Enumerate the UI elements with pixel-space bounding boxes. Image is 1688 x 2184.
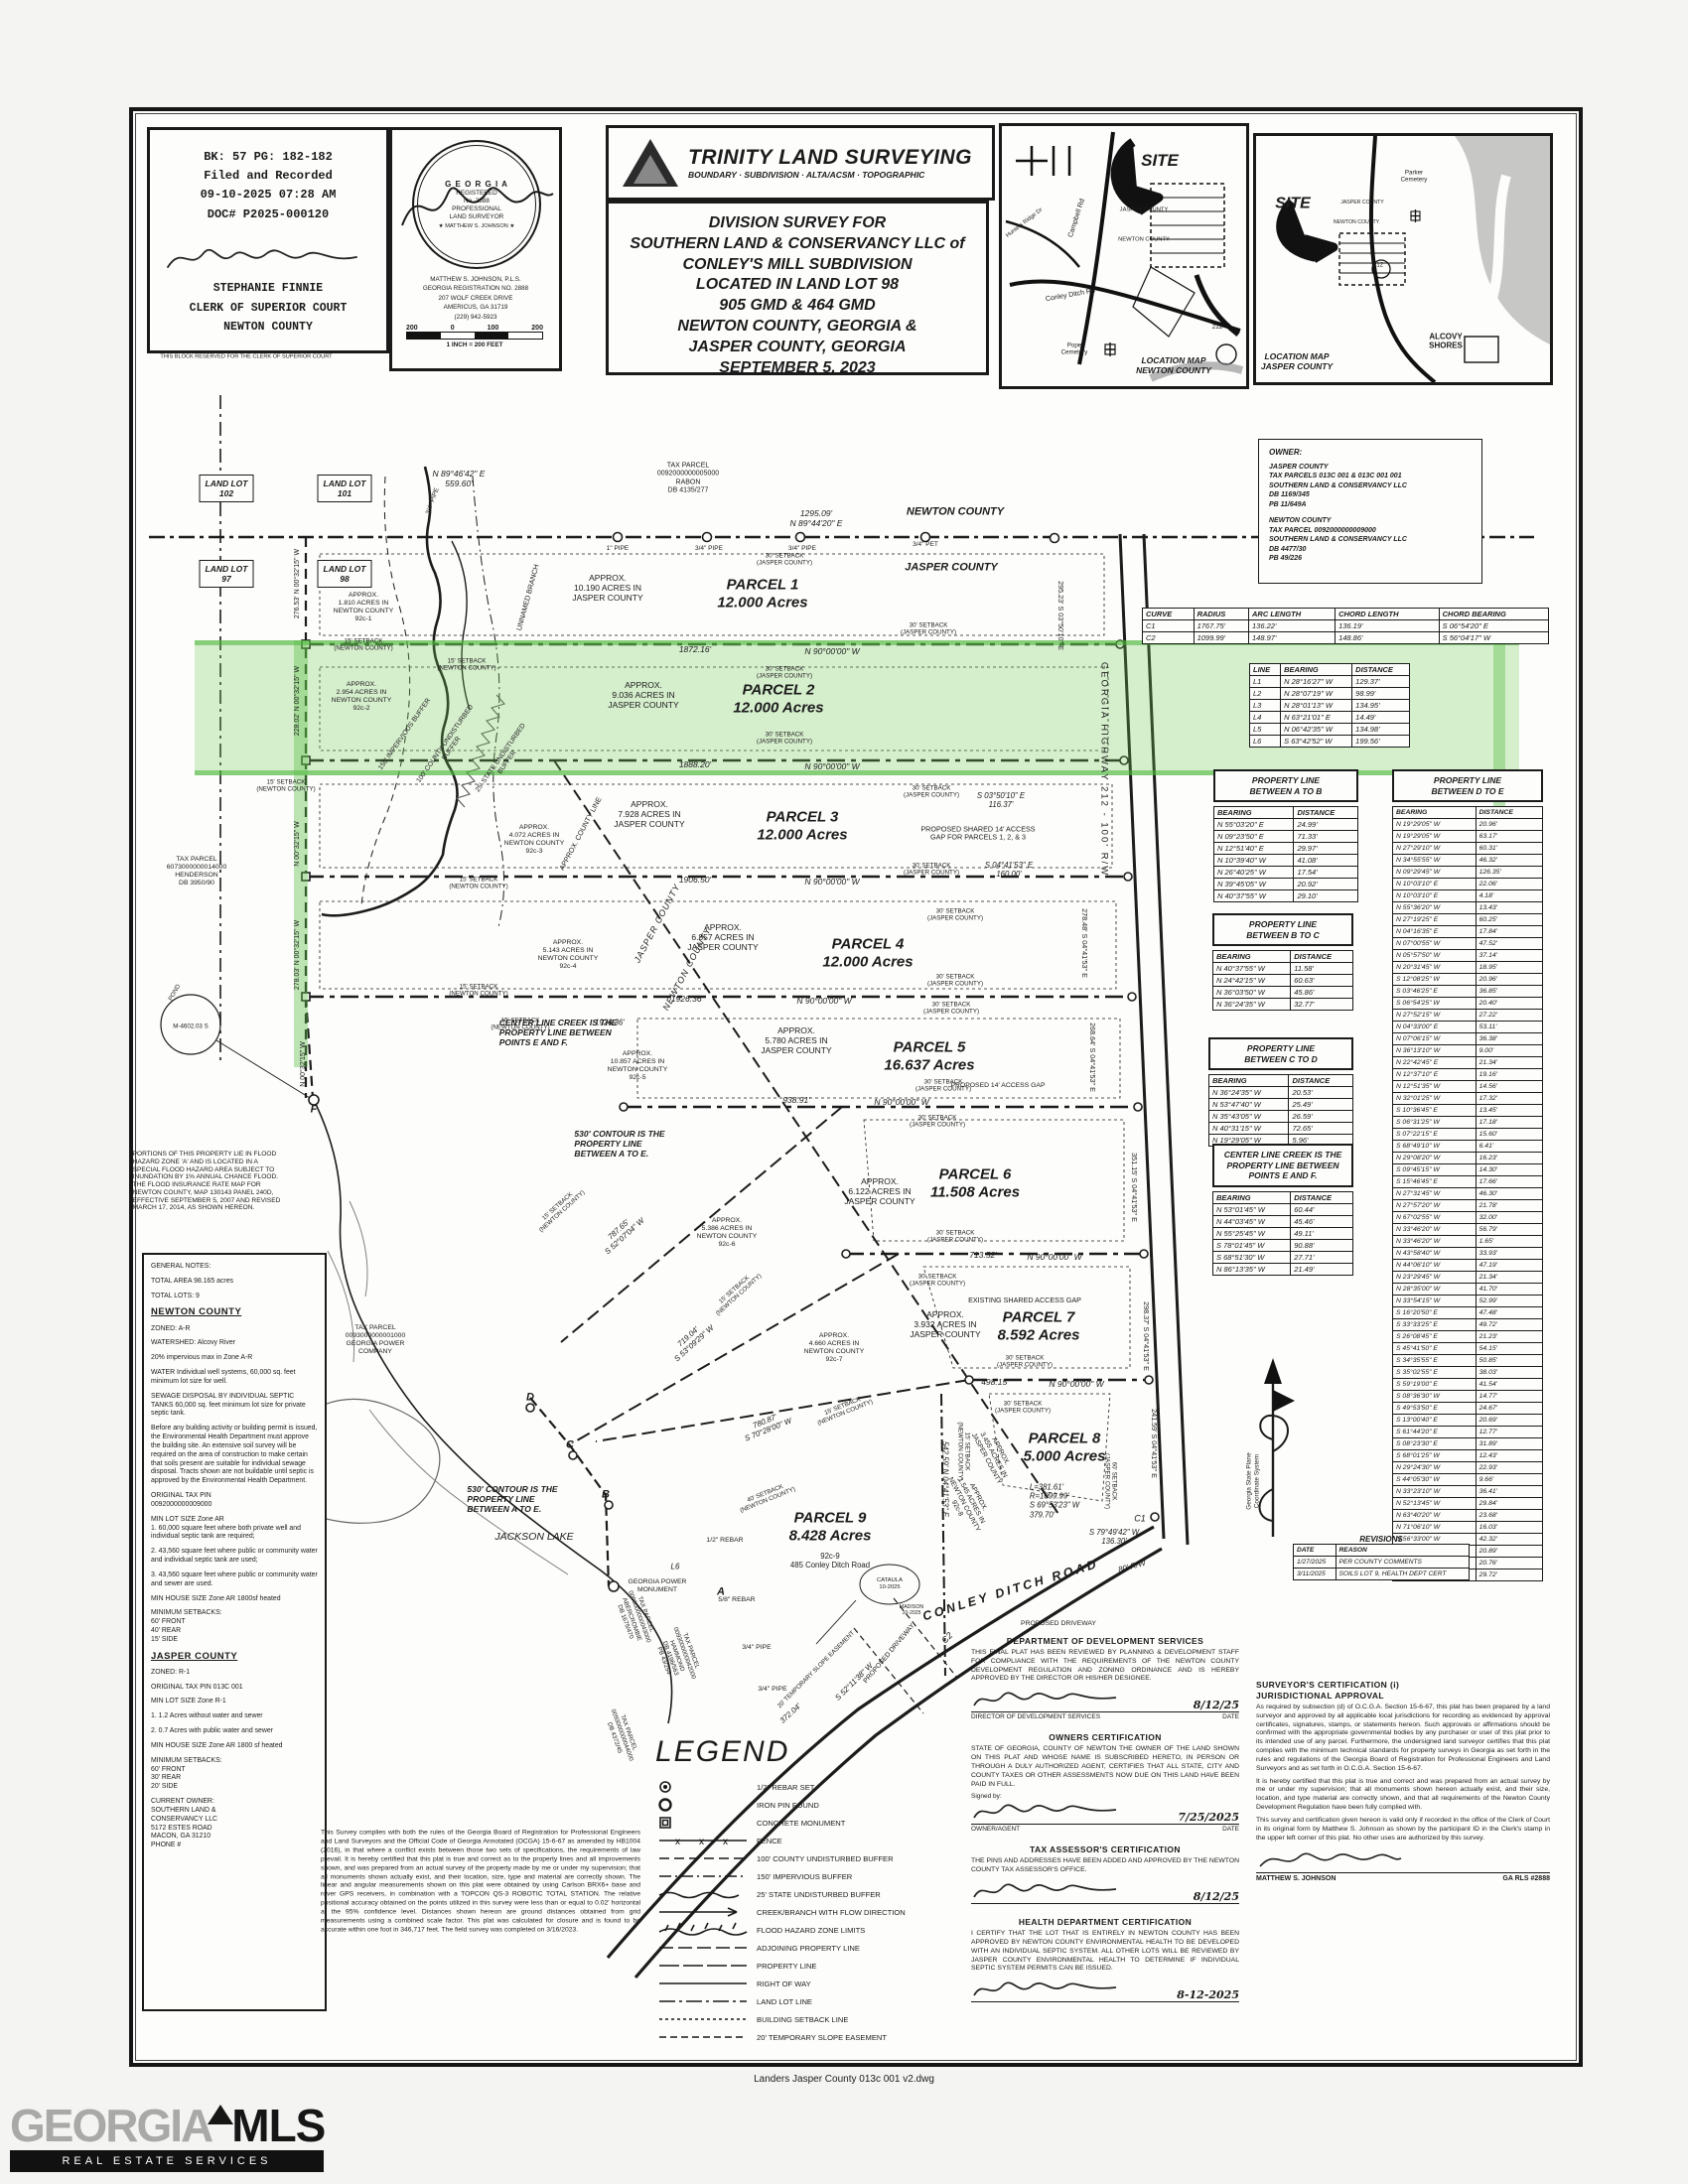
table-cell: N 27°29'10" W [1393, 843, 1477, 855]
table-cell: N 63°21'01" E [1281, 712, 1352, 724]
table-cell: 126.35' [1476, 867, 1542, 879]
table-cell: 52.99' [1476, 1296, 1542, 1307]
certification-heading: OWNERS CERTIFICATION [971, 1732, 1239, 1742]
table-header-cell: BEARING [1213, 1191, 1291, 1203]
plat-label: D [526, 1392, 534, 1405]
table-cell: L4 [1250, 712, 1281, 724]
table-row: S 34°35'55" E50.85' [1393, 1355, 1543, 1367]
table-row: S 68°51'30" W27.71' [1213, 1251, 1353, 1263]
plat-label: 3/4" PET [913, 541, 938, 549]
plat-label: TAX PARCEL 6073000000014000 HENDERSON DB… [167, 856, 226, 887]
table-cell: N 26°40'25" W [1214, 867, 1294, 879]
table-cell: N 39°45'05" W [1214, 879, 1294, 890]
plat-label: TAX PARCEL 0093000000044000 DB 4372/45 [602, 1706, 640, 1764]
table-row: N 10°03'10" E4.18' [1393, 890, 1543, 902]
table-cell: N 07°06'15" W [1393, 1033, 1477, 1045]
table-cell: N 12°37'10" E [1393, 1069, 1477, 1081]
table-cell: 14.56' [1476, 1081, 1542, 1093]
plat-label: S 79°49'42" W 136.30' [1089, 1528, 1139, 1546]
table-cell: 49.11' [1291, 1227, 1353, 1239]
plat-label: PARCEL 3 12.000 Acres [757, 808, 847, 843]
plat-label: Parker Cemetery [1401, 170, 1428, 185]
property-table-title: PROPERTY LINE BETWEEN B TO C [1212, 913, 1353, 946]
table-row: S 13°00'40" E20.69' [1393, 1415, 1543, 1427]
legend-item: 100' COUNTY UNDISTURBED BUFFER [657, 1850, 894, 1866]
table-cell: 29.97' [1294, 843, 1358, 855]
plat-label: 60' SETBACK (JASPER COUNTY) [1103, 1453, 1118, 1509]
georgia-mls-logo: GEORGIA MLS REAL ESTATE SERVICES [10, 2103, 325, 2148]
table-row: S 49°53'50" E24.67' [1393, 1403, 1543, 1415]
plat-label: 276.53' N 00°32'15" W [294, 549, 302, 618]
plat-label: 30' SETBACK (JASPER COUNTY) [757, 553, 812, 568]
line-table: LINEBEARINGDISTANCEL1N 28°16'27" W129.37… [1249, 663, 1410, 748]
legend-item: CREEK/BRANCH WITH FLOW DIRECTION [657, 1904, 906, 1920]
plat-label: C2 [939, 1630, 955, 1646]
table-cell: N 06°42'35" W [1281, 724, 1352, 736]
plat-label: L=381.61' R=1099.99' S 69°53'23" W 379.7… [1030, 1483, 1079, 1520]
table-cell: 20.96' [1476, 974, 1542, 986]
table-row: S 26°08'45" E21.23' [1393, 1331, 1543, 1343]
plat-label: EXISTING SHARED ACCESS GAP [968, 1297, 1081, 1304]
plat-label: PARCEL 2 12.000 Acres [733, 681, 823, 716]
table-cell: 33.93' [1476, 1248, 1542, 1260]
table-cell: 53.11' [1476, 1022, 1542, 1033]
plat-label: ALCOVY SHORES [1429, 333, 1463, 351]
table-row: S 06°31'25" W17.18' [1393, 1117, 1543, 1129]
table-row: S 78°01'45" W90.88' [1213, 1239, 1353, 1251]
table-row: N 55°36'20" W13.43' [1393, 902, 1543, 914]
owner-heading: OWNER: [1269, 448, 1472, 457]
plat-label: 1888.20' [679, 759, 711, 769]
plat-label: 1295.09' N 89°44'20" E [790, 508, 843, 528]
plat-label: 351.15' S 04°41'53" E [1130, 1153, 1138, 1222]
plat-label: N 89°46'42" E 559.60' [433, 469, 486, 488]
plat-label: APPROX. 4.072 ACRES IN NEWTON COUNTY 92c… [504, 824, 565, 856]
table-cell: 27.71' [1291, 1251, 1353, 1263]
plat-label: C1 [1134, 1514, 1146, 1525]
data-table: BEARINGDISTANCEN 55°03'20" E24.99'N 09°2… [1213, 806, 1358, 902]
table-header-cell: BEARING [1393, 807, 1477, 819]
general-note: CURRENT OWNER: SOUTHERN LAND & CONSERVAN… [151, 1798, 318, 1850]
plat-label: Campbell Rd [1067, 198, 1087, 238]
plat-label: 15' SETBACK (NEWTON COUNTY) [710, 1268, 764, 1318]
table-header-row: BEARINGDISTANCE [1213, 1191, 1353, 1203]
table-row: N 36°24'35" W20.53' [1209, 1087, 1353, 1099]
table-cell: 22.93' [1476, 1462, 1542, 1474]
table-cell: 45.46' [1291, 1215, 1353, 1227]
table-row: N 24°42'15" W60.63' [1213, 975, 1353, 987]
table-cell: S 26°08'45" E [1393, 1331, 1477, 1343]
table-row: N 53°01'45" W60.44' [1213, 1203, 1353, 1215]
table-cell: 60.31' [1476, 843, 1542, 855]
legend-item: LAND LOT LINE [657, 1993, 812, 2009]
table-cell: 41.08' [1294, 855, 1358, 867]
table-header-cell: DISTANCE [1289, 1075, 1353, 1087]
table-row: S 15°46'45" E17.66' [1393, 1176, 1543, 1188]
plat-label: LAND LOT 97 [200, 560, 254, 588]
table-cell: N 29°08'20" W [1393, 1153, 1477, 1164]
legend-item: IRON PIN FOUND [657, 1797, 819, 1813]
plat-label: 241.59' S 04°41'53" E [1150, 1409, 1158, 1478]
plat-label: 30' SETBACK (JASPER COUNTY) [757, 666, 812, 681]
plat-label: APPROX. 10.190 ACRES IN JASPER COUNTY [572, 573, 642, 603]
plat-label: M-4602.03 S [173, 1023, 208, 1029]
table-cell: N 53°01'45" W [1213, 1203, 1291, 1215]
certification-section: TAX ASSESSOR'S CERTIFICATIONTHE PINS AND… [971, 1844, 1239, 1905]
table-cell: N 24°42'15" W [1213, 975, 1291, 987]
table-cell: N 28°01'13" W [1281, 700, 1352, 712]
table-cell: 72.65' [1289, 1123, 1353, 1135]
plat-label: 780.87' S 70°28'00" W [740, 1408, 793, 1443]
legend-item-label: 25' STATE UNDISTURBED BUFFER [757, 1890, 881, 1899]
table-cell: 9.00' [1476, 1045, 1542, 1057]
plat-label: 30' SETBACK (JASPER COUNTY) [927, 908, 983, 923]
surveyor-cert-para1: As required by subsection (d) of O.C.G.A… [1256, 1704, 1550, 1774]
plat-label: 3/4" PIPE [788, 545, 816, 553]
plat-label: 938.91' [782, 1095, 810, 1105]
plat-label: LAND LOT 102 [200, 475, 254, 502]
plat-label: 268.64' S 04°41'53" E [1088, 1023, 1096, 1092]
plat-label: APPROX. 1.810 ACRES IN NEWTON COUNTY 92c… [334, 592, 394, 623]
table-cell: 71.33' [1294, 831, 1358, 843]
table-row: L1N 28°16'27" W129.37' [1250, 676, 1410, 688]
plat-label: LOCATION MAP JASPER COUNTY [1261, 351, 1333, 371]
table-row: N 27°57'20" W21.78' [1393, 1200, 1543, 1212]
plat-label: TAX PARCEL 0092000000005000 RABON DB 413… [657, 463, 719, 495]
table-cell: S 06°31'25" W [1393, 1117, 1477, 1129]
plat-label: 15' SETBACK (NEWTON COUNTY) [449, 877, 507, 891]
table-cell: N 27°31'45" W [1393, 1188, 1477, 1200]
table-row: N 19°29'05" W63.17' [1393, 831, 1543, 843]
general-note: 3. 43,560 square feet where public or co… [151, 1571, 318, 1589]
owner-newton: NEWTON COUNTY TAX PARCEL 009200000000900… [1269, 516, 1472, 563]
table-cell: 17.18' [1476, 1117, 1542, 1129]
certification-section: DEPARTMENT OF DEVELOPMENT SERVICESTHIS F… [971, 1636, 1239, 1720]
scanned-plat-page: BK: 57 PG: 182-182 Filed and Recorded 09… [0, 0, 1688, 2184]
table-header-row: BEARINGDISTANCE [1214, 807, 1358, 819]
data-table: BEARINGDISTANCEN 19°29'05" W20.96'N 19°2… [1392, 806, 1543, 1581]
table-cell: 29.72' [1476, 1570, 1542, 1581]
plat-label: 530' CONTOUR IS THE PROPERTY LINE BETWEE… [467, 1484, 557, 1514]
owner-jasper: JASPER COUNTY TAX PARCELS 013C 001 & 013… [1269, 463, 1472, 509]
table-header-row: DATEREASON [1294, 1545, 1470, 1557]
data-table: LINEBEARINGDISTANCEL1N 28°16'27" W129.37… [1249, 663, 1410, 748]
table-cell: N 71°06'10" W [1393, 1522, 1477, 1534]
table-row: N 32°01'25" W17.32' [1393, 1093, 1543, 1105]
plat-label: 30' SETBACK (JASPER COUNTY) [910, 1274, 965, 1289]
table-cell: 26.59' [1289, 1111, 1353, 1123]
table-cell: L2 [1250, 688, 1281, 700]
table-row: N 63°40'20" W23.68' [1393, 1510, 1543, 1522]
plat-label: 1/2" REBAR [706, 1537, 743, 1545]
table-cell: N 12°51'40" E [1214, 843, 1294, 855]
plat-label: 212 [1373, 262, 1383, 269]
table-row: S 61°44'20" E12.77' [1393, 1427, 1543, 1438]
table-cell: N 10°03'10" E [1393, 890, 1477, 902]
legend-item-label: 150' IMPERVIOUS BUFFER [757, 1872, 852, 1881]
table-cell: 21.23' [1476, 1331, 1542, 1343]
plat-label: Hunters Ridge Dr [1005, 207, 1045, 240]
plat-label: 498.15' [981, 1377, 1009, 1387]
table-cell: N 40°31'15" W [1209, 1123, 1289, 1135]
plat-label: APPROX. 6.122 ACRES IN JASPER COUNTY [844, 1176, 914, 1206]
surveyor-certification: SURVEYOR'S CERTIFICATION (i) JURISDICTIO… [1256, 1680, 1550, 1882]
data-table: BEARINGDISTANCEN 40°37'55" W11.58'N 24°4… [1212, 950, 1353, 1011]
plat-label: 3/4" PIPE [758, 1686, 786, 1694]
svg-text:x: x [675, 1837, 680, 1847]
plat-label: B [602, 1489, 610, 1502]
dash-med-icon [657, 1940, 749, 1956]
table-cell: N 28°07'19" W [1281, 688, 1352, 700]
legend: LEGEND [655, 1735, 963, 1769]
table-row: N 10°39'40" W41.08' [1214, 855, 1358, 867]
plat-label: PROPOSED DRIVEWAY [1021, 1620, 1096, 1628]
surveyor-cert-heading2: JURISDICTIONAL APPROVAL [1256, 1691, 1550, 1701]
certification-date: 8-12-2025 [1177, 1988, 1239, 2001]
table-cell: S 68°49'10" W [1393, 1141, 1477, 1153]
table-row: S 68°49'10" W6.41' [1393, 1141, 1543, 1153]
legend-item: RIGHT OF WAY [657, 1976, 811, 1991]
plat-label: 713.52' [969, 1250, 997, 1260]
table-cell: S 06°54'25" W [1393, 998, 1477, 1010]
table-cell: 17.84' [1476, 926, 1542, 938]
table-cell: 21.78' [1476, 1200, 1542, 1212]
plat-label: N 90°00'00" W [804, 877, 859, 887]
table-cell: 41.70' [1476, 1284, 1542, 1296]
legend-item-label: CONCRETE MONUMENT [757, 1819, 845, 1828]
plat-label: 3/4" PIPE [425, 487, 442, 516]
legend-item: FLOOD HAZARD ZONE LIMITS [657, 1922, 865, 1938]
general-note: MINIMUM SETBACKS: 60' FRONT 30' REAR 20'… [151, 1757, 318, 1792]
table-cell: 9.66' [1476, 1474, 1542, 1486]
table-cell: N 34°55'55" W [1393, 855, 1477, 867]
table-cell: 15.60' [1476, 1129, 1542, 1141]
plat-label: 542.59' N 04°41'53" E [940, 1441, 949, 1517]
general-note: ZONED: A-R [151, 1325, 318, 1334]
plat-label: CATAULA 10-2025 [877, 1577, 903, 1591]
plat-label: UNNAMED BRANCH [515, 564, 541, 632]
table-row: N 53°47'40" W25.49' [1209, 1099, 1353, 1111]
plat-label: 719.04' S 53°09'29" W [666, 1316, 716, 1363]
table-cell: 17.54' [1294, 867, 1358, 879]
table-cell: L1 [1250, 676, 1281, 688]
table-cell: S 34°35'55" E [1393, 1355, 1477, 1367]
table-cell: 36.85' [1476, 986, 1542, 998]
table-cell: 47.19' [1476, 1260, 1542, 1272]
legend-item: 150' IMPERVIOUS BUFFER [657, 1868, 852, 1884]
plat-label: PROPOSED DRIVEWAY [863, 1622, 917, 1685]
table-cell: 14.30' [1476, 1164, 1542, 1176]
property-table-title: PROPERTY LINE BETWEEN C TO D [1208, 1037, 1353, 1070]
table-cell: N 33°46'20" W [1393, 1224, 1477, 1236]
table-row: N 33°23'10" W36.41' [1393, 1486, 1543, 1498]
general-note: NEWTON COUNTY [151, 1306, 318, 1318]
table-cell: N 55°03'20" E [1214, 819, 1294, 831]
table-cell: 42.32' [1476, 1534, 1542, 1546]
table-cell: 32.77' [1291, 999, 1353, 1011]
table-cell: L6 [1250, 736, 1281, 748]
table-row: N 26°40'25" W17.54' [1214, 867, 1358, 879]
plat-label: 15' SETBACK (NEWTON COUNTY) [449, 984, 507, 999]
table-cell: N 86°13'35" W [1213, 1263, 1291, 1275]
plat-label: S 04°41'53" E 160.00' [985, 861, 1033, 879]
plat-label: 298.37' S 04°41'53" E [1142, 1301, 1150, 1371]
table-row: N 27°29'10" W60.31' [1393, 843, 1543, 855]
table-cell: SOILS LOT 9, HEALTH DEPT CERT [1336, 1569, 1469, 1580]
plat-label: MADISON 10-2025 [900, 1604, 923, 1616]
table-cell: 47.52' [1476, 938, 1542, 950]
table-cell: C2 [1143, 632, 1195, 644]
plat-label: PARCEL 1 12.000 Acres [717, 576, 807, 611]
plat-label: 787.65' S 52°07'04" W [597, 1209, 646, 1256]
table-cell: N 19°29'05" W [1393, 819, 1477, 831]
table-header-cell: LINE [1250, 664, 1281, 676]
plat-label: PARCEL 6 11.508 Acres [930, 1165, 1020, 1200]
general-note: TOTAL AREA 98.165 acres [151, 1278, 318, 1287]
plat-label: 1906.50' [679, 875, 711, 885]
table-cell: 24.67' [1476, 1403, 1542, 1415]
table-row: S 35°02'55" E38.03' [1393, 1367, 1543, 1379]
certification-sig-line: OWNER/AGENTDATE [971, 1824, 1239, 1833]
plat-label: APPROX. 3.932 ACRES IN JASPER COUNTY [910, 1309, 980, 1339]
table-row: S 07°22'15" E15.60' [1393, 1129, 1543, 1141]
property-table-de: PROPERTY LINE BETWEEN D TO EBEARINGDISTA… [1392, 769, 1543, 1581]
revisions-title: REVISIONS [1293, 1535, 1470, 1544]
table-header-cell: DISTANCE [1294, 807, 1358, 819]
plat-label: 30' SETBACK (JASPER COUNTY) [904, 785, 959, 800]
signature-icon [971, 1688, 1120, 1711]
table-cell: 148.97' [1249, 632, 1336, 644]
legend-item-label: CREEK/BRANCH WITH FLOW DIRECTION [757, 1908, 906, 1917]
table-row: N 09°29'45" W126.35' [1393, 867, 1543, 879]
plat-label: APPROX. 4.660 ACRES IN NEWTON COUNTY 92c… [804, 1332, 865, 1364]
table-cell: N 29°24'30" W [1393, 1462, 1477, 1474]
solid-icon [657, 1976, 749, 1991]
table-row: L6S 63°42'52" W199.56' [1250, 736, 1410, 748]
table-header-cell: DISTANCE [1352, 664, 1410, 676]
data-table: CURVERADIUSARC LENGTHCHORD LENGTHCHORD B… [1142, 608, 1549, 644]
plat-label: TAX PARCEL 0093000000001000 GEORGIA POWE… [346, 1324, 405, 1356]
table-cell: N 43°58'40" W [1393, 1248, 1477, 1260]
legend-item: CONCRETE MONUMENT [657, 1815, 845, 1831]
certification-sig-line: DIRECTOR OF DEVELOPMENT SERVICESDATE [971, 1711, 1239, 1720]
plat-label: 30' SETBACK (JASPER COUNTY) [923, 1002, 979, 1017]
table-cell: N 55°25'45" W [1213, 1227, 1291, 1239]
plat-label: JASPER COUNTY [1340, 200, 1384, 205]
general-note: 1. 1.2 Acres without water and sewer [151, 1712, 318, 1721]
table-cell: 134.98' [1352, 724, 1410, 736]
table-row: N 29°24'30" W22.93' [1393, 1462, 1543, 1474]
dash-long-icon [657, 1850, 749, 1866]
table-cell: 14.49' [1352, 712, 1410, 724]
table-header-cell: DISTANCE [1291, 951, 1353, 963]
table-row: S 06°54'25" W20.40' [1393, 998, 1543, 1010]
table-cell: 13.43' [1476, 902, 1542, 914]
table-row: S 45°41'50" E54.15' [1393, 1343, 1543, 1355]
table-row: N 55°03'20" E24.99' [1214, 819, 1358, 831]
table-cell: 20.96' [1476, 819, 1542, 831]
table-header-cell: RADIUS [1194, 609, 1248, 620]
table-row: N 71°06'10" W16.03' [1393, 1522, 1543, 1534]
table-cell: N 09°23'50" E [1214, 831, 1294, 843]
general-note: ZONED: R-1 [151, 1669, 318, 1678]
general-note: MIN LOT SIZE Zone AR 1. 60,000 square fe… [151, 1516, 318, 1542]
table-row: N 86°13'35" W21.49' [1213, 1263, 1353, 1275]
table-row: N 52°13'45" W29.84' [1393, 1498, 1543, 1510]
table-row: C21099.99'148.97'148.86'S 56°04'17" W [1143, 632, 1549, 644]
table-header-cell: CHORD BEARING [1439, 609, 1548, 620]
property-table-bc: PROPERTY LINE BETWEEN B TO CBEARINGDISTA… [1212, 913, 1353, 1011]
plat-label: 3/4" PIPE [695, 545, 723, 553]
legend-item: ADJOINING PROPERTY LINE [657, 1940, 860, 1956]
table-cell: S 56°04'17" W [1439, 632, 1548, 644]
plat-label: APPROX. 5.386 ACRES IN NEWTON COUNTY 92c… [697, 1217, 758, 1249]
table-cell: S 49°53'50" E [1393, 1403, 1477, 1415]
plat-label: 5/8" REBAR [718, 1596, 755, 1604]
table-cell: N 36°24'35" W [1213, 999, 1291, 1011]
legend-item-label: BUILDING SETBACK LINE [757, 2015, 848, 2024]
table-cell: 20.76' [1476, 1558, 1542, 1570]
table-cell: N 28°16'27" W [1281, 676, 1352, 688]
certification-body: THIS FINAL PLAT HAS BEEN REVIEWED BY PLA… [971, 1649, 1239, 1684]
plat-label: 15' SETBACK (NEWTON COUNTY) [533, 1184, 587, 1235]
plat-label: 15' SETBACK (NEWTON COUNTY) [956, 1422, 971, 1480]
table-cell: N 22°42'45" E [1393, 1057, 1477, 1069]
certification-date: 8/12/25 [1194, 1890, 1239, 1903]
table-cell: S 44°05'30" W [1393, 1474, 1477, 1486]
owner-block: OWNER: JASPER COUNTY TAX PARCELS 013C 00… [1258, 439, 1482, 584]
table-cell: 20.92' [1294, 879, 1358, 890]
table-cell: 63.17' [1476, 831, 1542, 843]
brand-mls: MLS [231, 2103, 325, 2148]
table-cell: 21.34' [1476, 1057, 1542, 1069]
table-row: L2N 28°07'19" W98.99' [1250, 688, 1410, 700]
table-row: N 19°29'05" W20.96' [1393, 819, 1543, 831]
plat-label: 100' COUNTY UNDISTURBED BUFFER [415, 704, 482, 789]
table-header-row: BEARINGDISTANCE [1209, 1075, 1353, 1087]
hatch-icon [657, 1922, 749, 1938]
table-cell: 19.16' [1476, 1069, 1542, 1081]
table-row: N 33°54'15" W52.99' [1393, 1296, 1543, 1307]
table-cell: N 33°23'10" W [1393, 1486, 1477, 1498]
table-header-cell: BEARING [1213, 951, 1291, 963]
plat-label: APPROX. 5.780 ACRES IN JASPER COUNTY [761, 1025, 831, 1055]
table-row: N 40°37'55" W11.58' [1213, 963, 1353, 975]
table-cell: 29.10' [1294, 890, 1358, 902]
drawing-filename: Landers Jasper County 013c 001 v2.dwg [754, 2074, 934, 2086]
plat-label: 15' SETBACK (NEWTON COUNTY) [256, 779, 315, 794]
plat-label: 15' SETBACK (NEWTON COUNTY) [437, 658, 495, 673]
certification-section: HEALTH DEPARTMENT CERTIFICATIONI CERTIFY… [971, 1917, 1239, 2003]
table-cell: N 12°51'35" W [1393, 1081, 1477, 1093]
plat-label: 40' SETBACK (NEWTON COUNTY) [737, 1479, 797, 1515]
table-cell: N 44°06'10" W [1393, 1260, 1477, 1272]
table-row: S 10°36'45" E13.45' [1393, 1105, 1543, 1117]
plat-label: APPROX. 2.954 ACRES IN NEWTON COUNTY 92c… [332, 681, 392, 713]
surveyor-cert-para2: It is hereby certified that this plat is… [1256, 1778, 1550, 1813]
property-table-title: CENTER LINE CREEK IS THE PROPERTY LINE B… [1212, 1144, 1353, 1187]
dash-short-icon [657, 2029, 749, 2045]
table-cell: 20.40' [1476, 998, 1542, 1010]
table-cell: N 28°35'00" W [1393, 1284, 1477, 1296]
table-cell: 32.00' [1476, 1212, 1542, 1224]
table-cell: N 07°00'55" W [1393, 938, 1477, 950]
table-cell: C1 [1143, 620, 1195, 632]
concrete-monument-icon [657, 1815, 749, 1831]
data-table: DATEREASON1/27/2025PER COUNTY COMMENTS3/… [1293, 1544, 1470, 1580]
brand-georgia: GEORGIA [10, 2103, 211, 2148]
plat-label: LAND LOT 98 [318, 560, 372, 588]
